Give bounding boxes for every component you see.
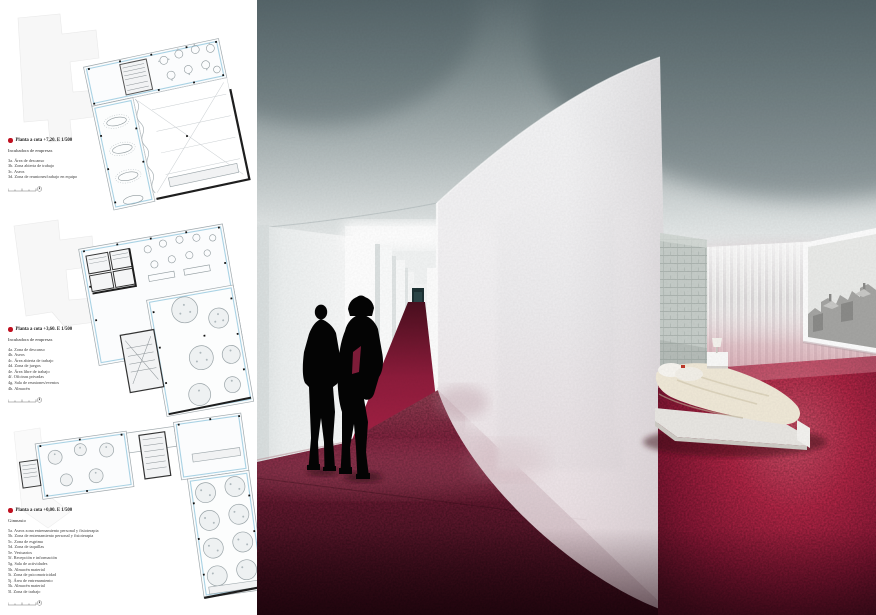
scale-bar-icon: [8, 185, 42, 193]
presentation-board: Planta a cota +7,20. E 1/500 Incubadora …: [0, 0, 876, 615]
scale-bar: [8, 396, 126, 404]
north-arrow-icon: [37, 601, 42, 606]
plan-level-marker-icon: [8, 508, 13, 513]
legend-item: 3d. Zona de reuniones/trabajo en equipo: [8, 174, 126, 180]
film-grain: [257, 0, 876, 615]
scale-bar-icon: [8, 396, 42, 404]
legend-subtitle: Incubadora de empresas: [8, 337, 126, 342]
scale-bar-icon: [8, 599, 42, 607]
render-drawing: [257, 0, 876, 615]
floor-plans-panel: Planta a cota +7,20. E 1/500 Incubadora …: [0, 0, 257, 615]
scale-bar: [8, 185, 126, 193]
legend-items: 4a. Zona de descanso4b. Aseos4c. Área ab…: [8, 347, 126, 392]
legend-title: Planta a cota +0,00. E 1/500: [16, 508, 73, 513]
plan-level-marker-icon: [8, 327, 13, 332]
plan-level-marker-icon: [8, 138, 13, 143]
legend-items: 3a. Área de descanso3b. Zona abierta de …: [8, 158, 126, 180]
legend-level-3: Planta a cota +7,20. E 1/500 Incubadora …: [8, 138, 126, 193]
legend-subtitle: Gimnasio: [8, 518, 132, 523]
interior-render: [257, 0, 876, 615]
legend-title: Planta a cota +3,60. E 1/500: [16, 327, 73, 332]
legend-items: 5a. Aseos zona entrenamiento personal y …: [8, 528, 132, 595]
north-arrow-icon: [37, 186, 42, 191]
legend-title: Planta a cota +7,20. E 1/500: [16, 138, 73, 143]
legend-item: 4h. Almacén: [8, 386, 126, 392]
scale-bar: [8, 599, 132, 607]
legend-level-1: Planta a cota +0,00. E 1/500 Gimnasio 5a…: [8, 508, 132, 607]
legend-subtitle: Incubadora de empresas: [8, 148, 126, 153]
legend-item: 5l. Zona de trabajo: [8, 589, 132, 595]
legend-level-2: Planta a cota +3,60. E 1/500 Incubadora …: [8, 327, 126, 404]
north-arrow-icon: [37, 397, 42, 402]
